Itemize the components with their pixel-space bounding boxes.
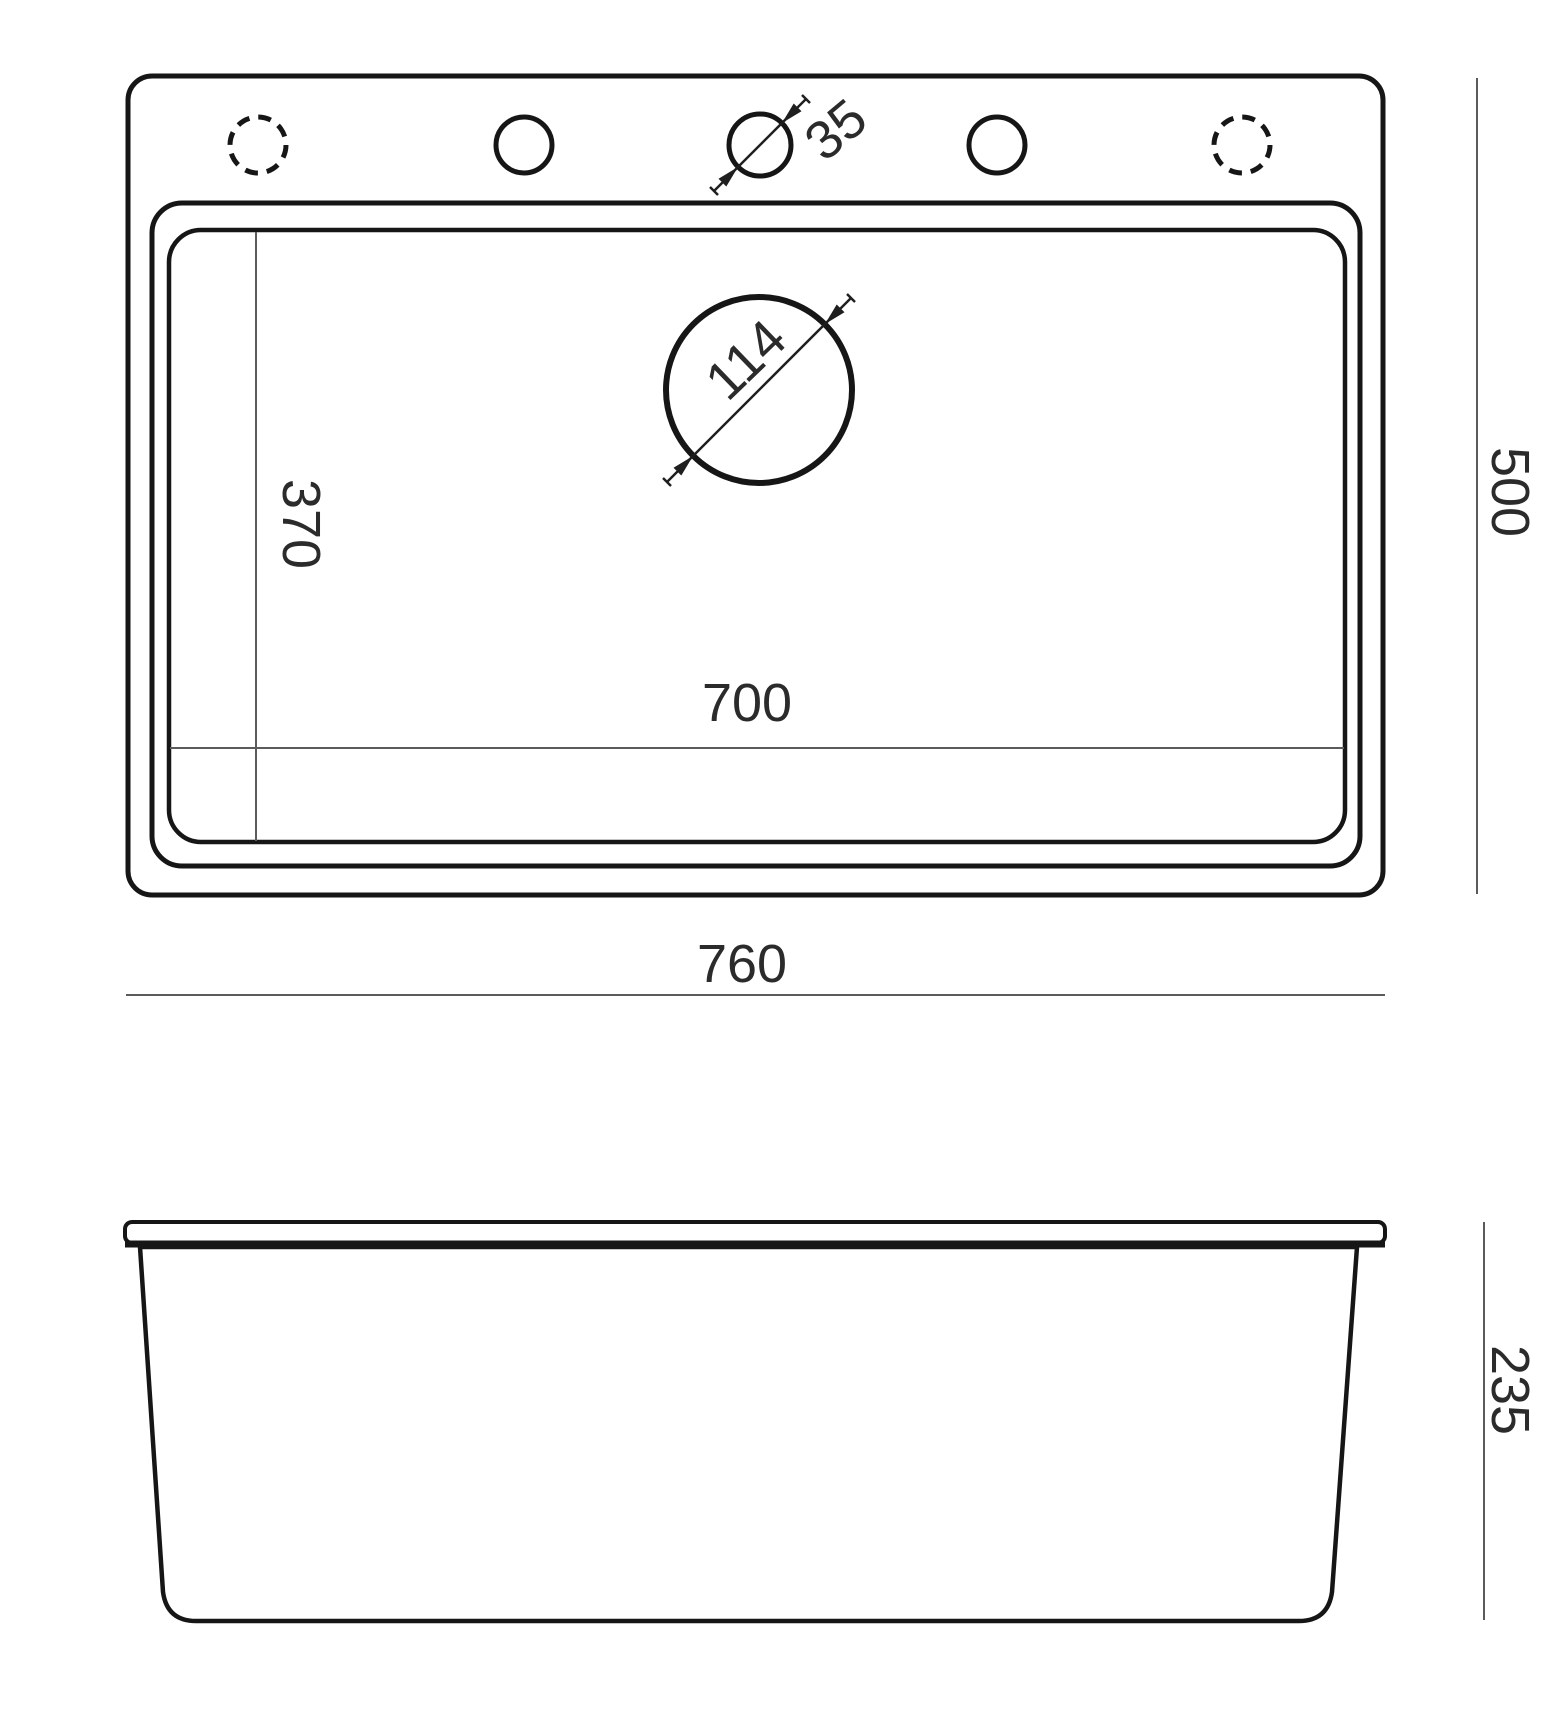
faucet-hole-diameter-callout: 35	[710, 88, 878, 195]
faucet-hole-left	[496, 117, 552, 173]
top-view: 35 114 370 700 500 760	[126, 76, 1540, 995]
overall-width-label: 760	[697, 934, 787, 994]
top-view-rim-edge	[152, 203, 1360, 866]
drain-diameter-label: 114	[694, 309, 798, 412]
height-label: 235	[1480, 1345, 1540, 1435]
sink-technical-drawing: 35 114 370 700 500 760	[0, 0, 1561, 1726]
side-view-rim	[125, 1222, 1385, 1243]
bowl-depth-label: 370	[271, 479, 331, 569]
faucet-hole-optional-right	[1214, 117, 1270, 173]
side-view-bowl-body	[140, 1247, 1357, 1621]
faucet-hole-optional-left	[230, 117, 286, 173]
side-view: 235	[125, 1222, 1540, 1621]
overall-depth-label: 500	[1480, 447, 1540, 537]
drawing-canvas: 35 114 370 700 500 760	[0, 0, 1561, 1726]
faucet-hole-right	[969, 117, 1025, 173]
bowl-width-label: 700	[702, 673, 792, 733]
